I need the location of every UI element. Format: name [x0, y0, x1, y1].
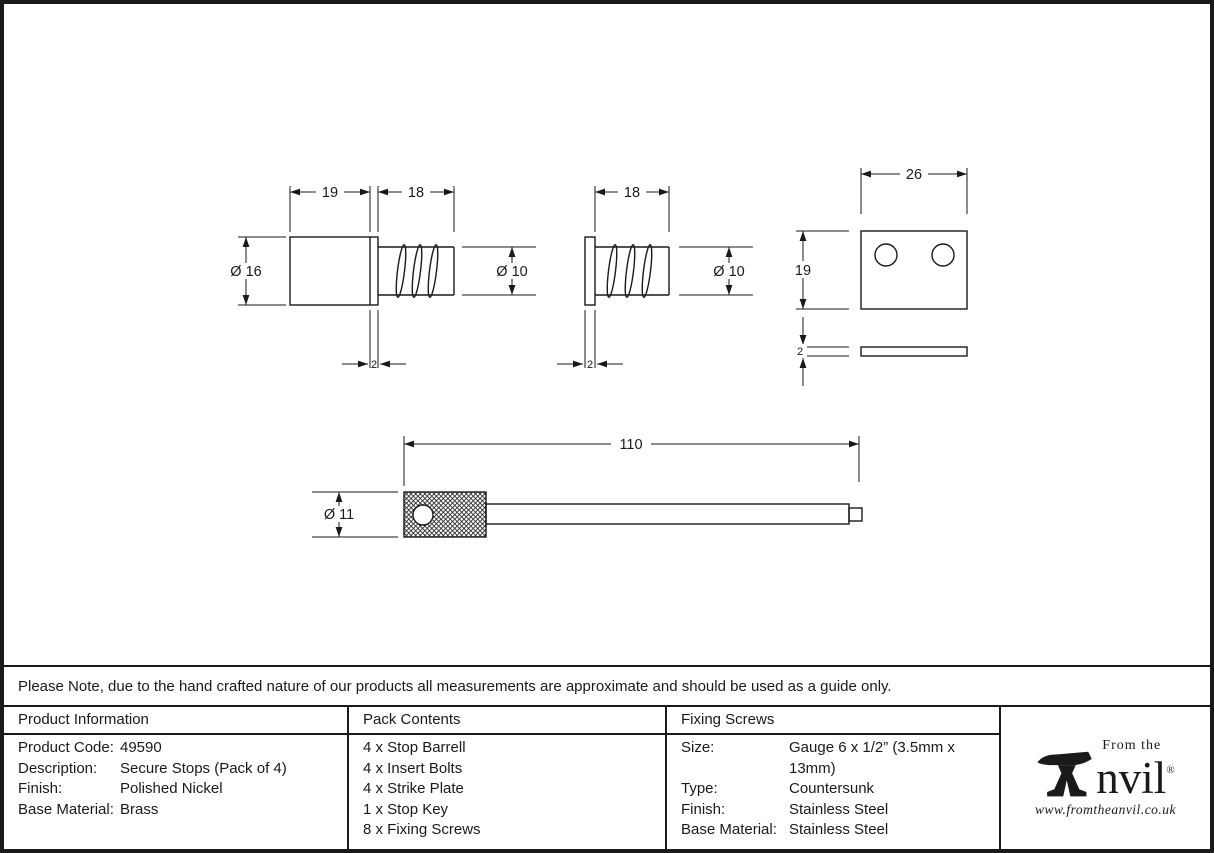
key-hole: [413, 505, 433, 525]
table-row: Finish: Stainless Steel: [681, 800, 999, 821]
dimension-label: Ø 10: [713, 264, 744, 280]
table-row: Size: Gauge 6 x 1/2” (3.5mm x 13mm): [681, 738, 999, 779]
list-item: 4 x Insert Bolts: [363, 759, 665, 780]
dimension-label: 18: [408, 185, 424, 201]
dimension-label: Ø 16: [230, 264, 261, 280]
dimension-label: 18: [624, 185, 640, 201]
screw-hole: [932, 244, 954, 266]
table-row: Description: Secure Stops (Pack of 4): [18, 759, 347, 780]
spec-sheet-page: 19 18 Ø 16 Ø 10: [0, 0, 1214, 853]
product-information-header: Product Information: [4, 707, 347, 735]
product-information-column: Product Information Product Code: 49590 …: [4, 707, 349, 849]
technical-drawings: 19 18 Ø 16 Ø 10: [4, 4, 1210, 663]
pack-contents-header: Pack Contents: [349, 707, 665, 735]
dimension-label: 110: [619, 437, 642, 453]
dimension-label: 2: [797, 346, 803, 358]
brand-logo-cell: From the nvil® www.fromtheanvil.co.uk: [1001, 707, 1210, 849]
website-url: www.fromtheanvil.co.uk: [1035, 802, 1176, 818]
strike-plate-edge: [861, 347, 967, 356]
key-tip: [849, 508, 862, 521]
insert-bolt-drawing: 18 Ø 10 2: [557, 184, 753, 371]
registered-mark: ®: [1166, 764, 1174, 776]
table-row: Type: Countersunk: [681, 779, 999, 800]
dimension-label: 2: [371, 359, 377, 371]
table-row: Base Material: Brass: [18, 800, 347, 821]
technical-drawings-area: 19 18 Ø 16 Ø 10: [4, 4, 1210, 665]
strike-plate-drawing: 26 19 2: [790, 166, 967, 386]
anvil-icon: [1036, 750, 1094, 800]
table-row: Finish: Polished Nickel: [18, 779, 347, 800]
bolt-thread-coils: [605, 244, 653, 297]
pack-contents-column: Pack Contents 4 x Stop Barrell 4 x Inser…: [349, 707, 667, 849]
dimension-label: 19: [322, 185, 338, 201]
bolt-flange: [585, 237, 595, 305]
stop-key-drawing: 110 Ø 11: [312, 436, 862, 537]
list-item: 4 x Stop Barrell: [363, 738, 665, 759]
strike-plate-face: [861, 231, 967, 309]
fixing-screws-header: Fixing Screws: [667, 707, 999, 735]
list-item: 1 x Stop Key: [363, 800, 665, 821]
dimension-label: 26: [906, 167, 922, 183]
brand-name: nvil: [1096, 753, 1166, 803]
dimension-label: 19: [795, 263, 811, 279]
fixing-screws-column: Fixing Screws Size: Gauge 6 x 1/2” (3.5m…: [667, 707, 1001, 849]
table-row: Base Material: Stainless Steel: [681, 820, 999, 841]
list-item: 4 x Strike Plate: [363, 779, 665, 800]
dimension-label: Ø 11: [324, 507, 354, 523]
dimension-label: Ø 10: [496, 264, 527, 280]
stop-barrel-drawing: 19 18 Ø 16 Ø 10: [227, 184, 536, 371]
dimension-label: 2: [587, 359, 593, 371]
from-the-anvil-logo: From the nvil® www.fromtheanvil.co.uk: [1035, 738, 1176, 818]
note-text: Please Note, due to the hand crafted nat…: [18, 678, 892, 695]
spec-table: Product Information Product Code: 49590 …: [4, 705, 1210, 849]
table-row: Product Code: 49590: [18, 738, 347, 759]
barrel-thread-coils: [394, 244, 439, 297]
key-shaft: [486, 504, 849, 524]
barrel-body: [290, 237, 378, 305]
list-item: 8 x Fixing Screws: [363, 820, 665, 841]
measurement-note: Please Note, due to the hand crafted nat…: [4, 665, 1210, 705]
screw-hole: [875, 244, 897, 266]
